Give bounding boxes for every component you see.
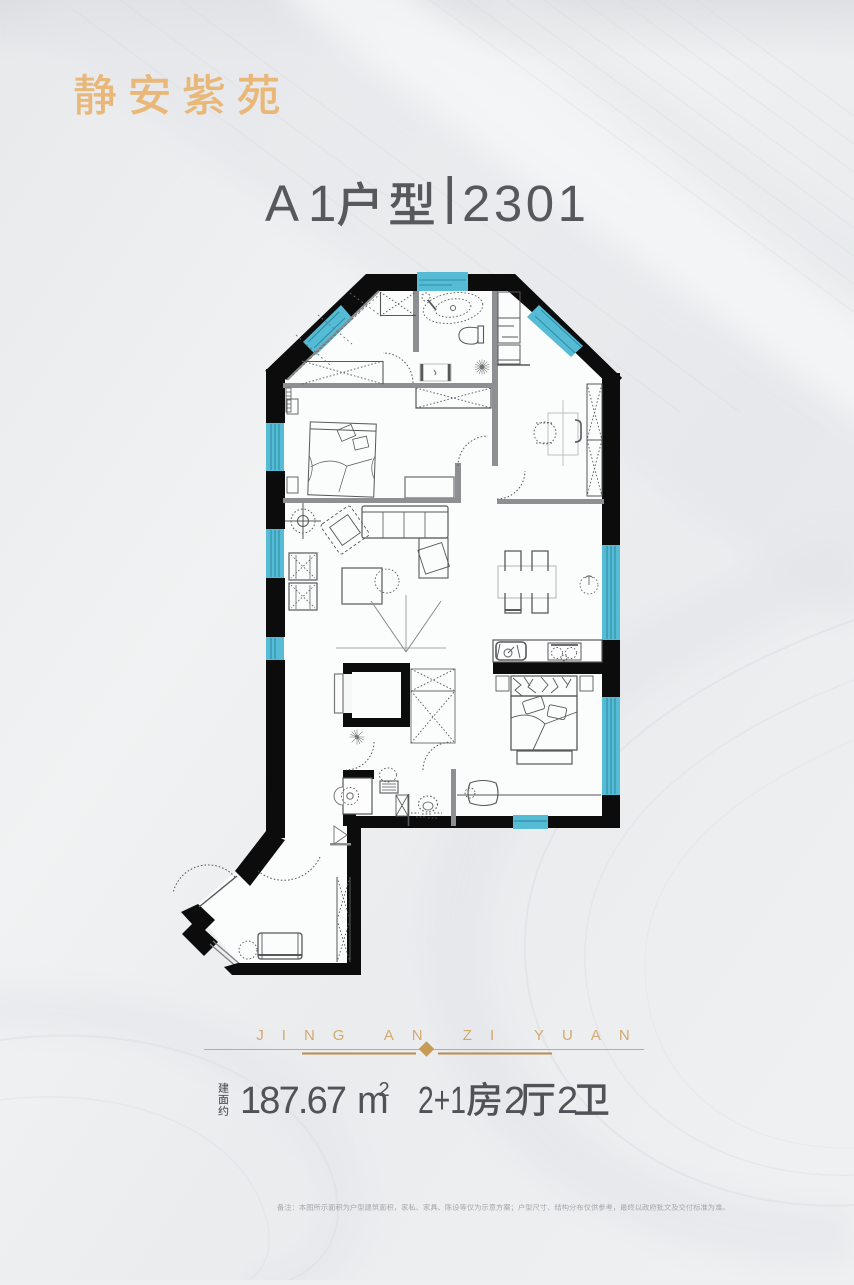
- svg-text:2301: 2301: [462, 175, 589, 232]
- svg-text:2: 2: [504, 1080, 525, 1122]
- svg-text:2: 2: [557, 1080, 578, 1122]
- svg-text:2: 2: [379, 1079, 390, 1101]
- svg-text:2+1: 2+1: [418, 1080, 466, 1122]
- svg-text:JING AN ZI YUAN: JING AN ZI YUAN: [256, 1027, 647, 1044]
- svg-text:A1: A1: [265, 175, 345, 232]
- svg-text:187.67: 187.67: [240, 1080, 347, 1122]
